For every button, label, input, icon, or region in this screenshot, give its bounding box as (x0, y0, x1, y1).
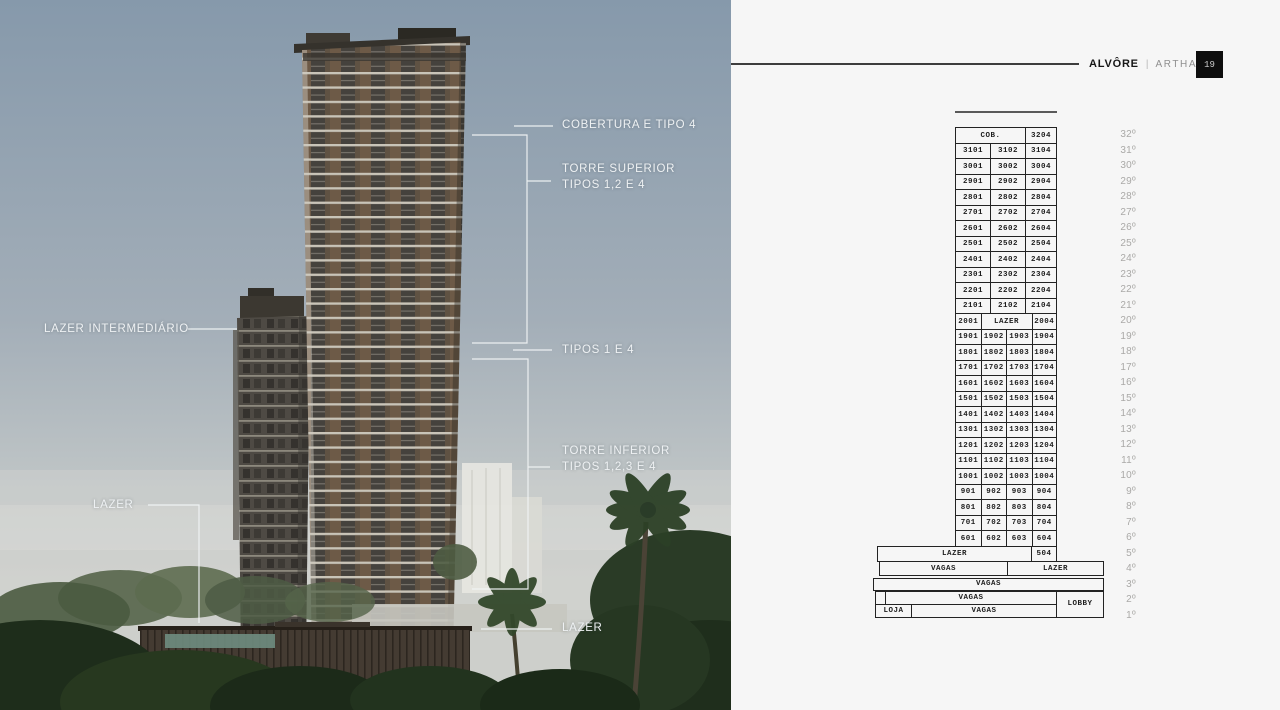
brand-divider: | (1146, 59, 1149, 70)
label-lazer-mid: LAZER (93, 499, 134, 511)
right-panel (731, 0, 1280, 710)
brand-name: ALVÔRE (1089, 58, 1139, 70)
brochure-page: COBERTURA E TIPO 4 TORRE SUPERIOR TIPOS … (0, 0, 1280, 710)
label-torre-superior-line2: TIPOS 1,2 E 4 (562, 177, 675, 193)
building-photo: COBERTURA E TIPO 4 TORRE SUPERIOR TIPOS … (0, 0, 731, 710)
label-lazer-bottom: LAZER (562, 622, 603, 634)
label-torre-inferior: TORRE INFERIOR TIPOS 1,2,3 E 4 (562, 443, 670, 475)
label-cobertura: COBERTURA E TIPO 4 (562, 119, 696, 131)
label-tipos-1-4: TIPOS 1 E 4 (562, 344, 634, 356)
page-number: 19 (1204, 60, 1215, 70)
label-torre-inferior-line2: TIPOS 1,2,3 E 4 (562, 459, 670, 475)
label-torre-superior: TORRE SUPERIOR TIPOS 1,2 E 4 (562, 161, 675, 193)
header-rule (731, 63, 1079, 65)
label-torre-inferior-line1: TORRE INFERIOR (562, 443, 670, 459)
label-lazer-intermediario: LAZER INTERMEDIÁRIO (44, 323, 189, 335)
label-torre-superior-line1: TORRE SUPERIOR (562, 161, 675, 177)
page-number-box: 19 (1196, 51, 1223, 78)
